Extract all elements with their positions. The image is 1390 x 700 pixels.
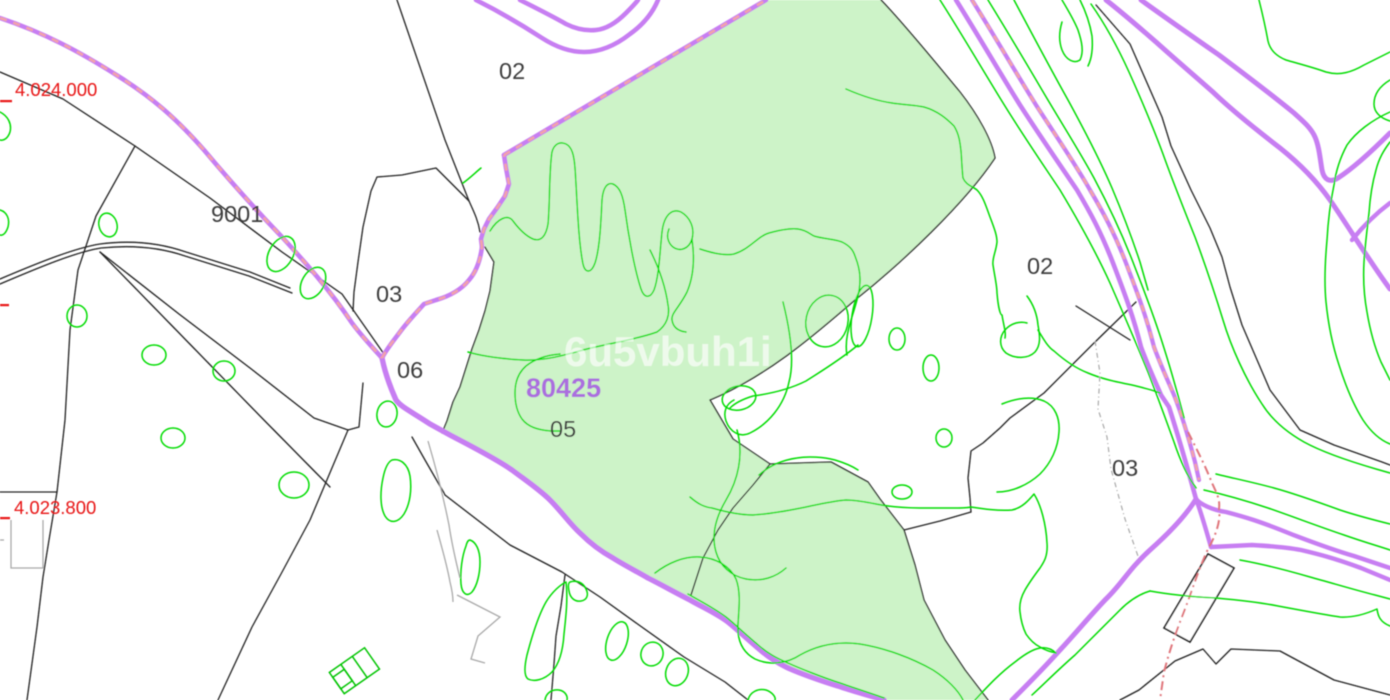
svg-text:05: 05 [550, 416, 576, 442]
svg-text:03: 03 [1112, 455, 1138, 481]
svg-text:9001: 9001 [211, 201, 263, 227]
svg-text:03: 03 [376, 281, 402, 307]
svg-text:80425: 80425 [526, 373, 601, 403]
svg-text:02: 02 [1027, 253, 1053, 279]
svg-text:6u5vbuh1i: 6u5vbuh1i [564, 328, 772, 375]
svg-text:4.023.800: 4.023.800 [14, 497, 96, 518]
svg-text:06: 06 [397, 357, 423, 383]
svg-text:02: 02 [499, 58, 525, 84]
svg-text:4.024.000: 4.024.000 [15, 79, 97, 100]
